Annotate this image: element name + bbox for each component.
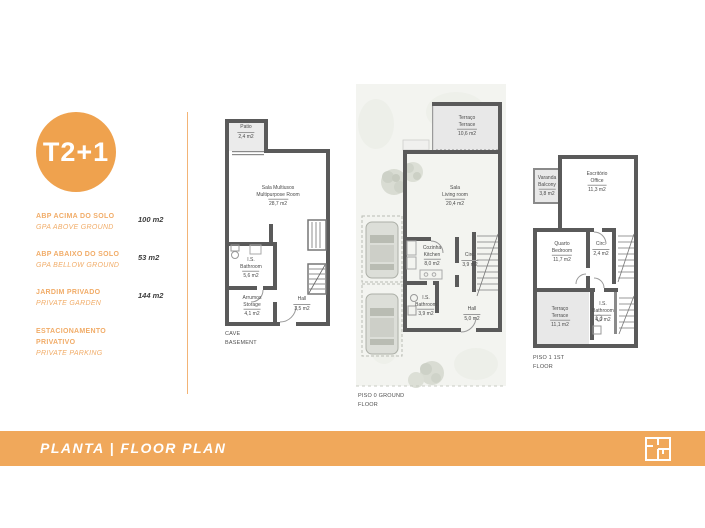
room-label-storage: ArrumosStorage 4,1 m2 xyxy=(243,295,262,318)
room-label-bathroom: I.S.Bathroom 3,9 m2 xyxy=(415,295,437,318)
spec-item-above-ground: ABP ACIMA DO SOLO GPA ABOVE GROUND 100 m… xyxy=(36,211,196,233)
floorplan-ground: TerraçoTerrace 10,6 m2 SalaLiving room 2… xyxy=(356,84,512,414)
room-label-circulation: Circ. 3,9 m2 xyxy=(461,252,478,268)
room-name: SalaLiving room xyxy=(442,185,468,198)
room-label-bedroom: QuartoBedroom 11,7 m2 xyxy=(552,241,572,264)
room-label-office: EscritórioOffice 11,3 m2 xyxy=(587,171,608,194)
room-name: QuartoBedroom xyxy=(552,241,572,254)
room-label-circulation: Circ. 2,4 m2 xyxy=(592,241,609,257)
floor-caption-basement: CAVEBASEMENT xyxy=(225,330,257,347)
floorplan-icon xyxy=(644,436,672,467)
room-name: Patio xyxy=(237,124,254,131)
room-name: Circ. xyxy=(461,252,478,259)
room-area: 3,8 m2 xyxy=(538,189,555,198)
room-area: 11,7 m2 xyxy=(552,255,572,264)
sidebar-divider xyxy=(187,112,188,394)
spec-sublabel: GPA BELLOW GROUND xyxy=(36,260,196,271)
room-area: 28,7 m2 xyxy=(268,199,288,208)
room-label-terrace: TerraçoTerrace 11,1 m2 xyxy=(550,306,570,329)
room-name: TerraçoTerrace xyxy=(550,306,570,319)
unit-type-label: T2+1 xyxy=(43,137,109,168)
footer-bar: PLANTA | FLOOR PLAN xyxy=(0,431,705,466)
spec-sublabel: PRIVATE GARDEN xyxy=(36,298,196,309)
room-name: Hall xyxy=(293,296,310,303)
floorplan-first: VarandaBalcony 3,8 m2 EscritórioOffice 1… xyxy=(528,146,640,372)
room-area: 10,6 m2 xyxy=(457,129,477,138)
room-name: VarandaBalcony xyxy=(538,175,557,188)
spec-label: ABP ACIMA DO SOLO xyxy=(36,211,196,222)
spec-item-private-parking: ESTACIONAMENTOPRIVATIVO PRIVATE PARKING xyxy=(36,326,196,359)
unit-type-badge: T2+1 xyxy=(36,112,116,192)
room-area: 8,0 m2 xyxy=(423,259,440,268)
room-name: ArrumosStorage xyxy=(243,295,262,308)
spec-label: ABP ABAIXO DO SOLO xyxy=(36,249,196,260)
room-name: CozinhaKitchen xyxy=(423,245,441,258)
room-name: I.S.Bathroom xyxy=(592,301,614,314)
room-name: I.S.Bathroom xyxy=(240,257,262,270)
page-root: T2+1 ABP ACIMA DO SOLO GPA ABOVE GROUND … xyxy=(0,0,705,528)
room-area: 11,1 m2 xyxy=(550,320,570,329)
room-area: 2,4 m2 xyxy=(592,249,609,258)
spec-item-private-garden: JARDIM PRIVADO PRIVATE GARDEN 144 m2 xyxy=(36,287,196,309)
floor-plan-title: PLANTA | FLOOR PLAN xyxy=(40,431,226,466)
floor-caption-ground: PISO 0 GROUNDFLOOR xyxy=(358,392,404,409)
room-label-patio: Patio 2,4 m2 xyxy=(237,124,254,140)
floorplan-basement: Patio 2,4 m2 Sala MultiusosMultipurpose … xyxy=(220,116,334,348)
spec-sublabel: GPA ABOVE GROUND xyxy=(36,222,196,233)
room-label-hall: Hall 3,5 m2 xyxy=(293,296,310,312)
room-name: Circ. xyxy=(592,241,609,248)
floorplan-basement-drawing xyxy=(220,116,334,348)
room-name: I.S.Bathroom xyxy=(415,295,437,308)
spec-value: 100 m2 xyxy=(138,215,163,224)
room-label-kitchen: CozinhaKitchen 8,0 m2 xyxy=(423,245,441,268)
spec-label: ESTACIONAMENTOPRIVATIVO xyxy=(36,326,196,348)
room-area: 3,5 m2 xyxy=(293,304,310,313)
room-area: 5,0 m2 xyxy=(463,314,480,323)
floor-caption-first: PISO 1 1STFLOOR xyxy=(533,354,564,371)
room-name: Hall xyxy=(463,306,480,313)
spec-value: 53 m2 xyxy=(138,253,159,262)
spec-label: JARDIM PRIVADO xyxy=(36,287,196,298)
room-label-living-room: SalaLiving room 20,4 m2 xyxy=(442,185,468,208)
room-area: 4,0 m2 xyxy=(594,315,611,324)
room-area: 3,9 m2 xyxy=(461,260,478,269)
room-label-terrace: TerraçoTerrace 10,6 m2 xyxy=(457,115,477,138)
room-label-balcony: VarandaBalcony 3,8 m2 xyxy=(538,175,557,198)
room-area: 20,4 m2 xyxy=(445,199,465,208)
room-name: Sala MultiusosMultipurpose Room xyxy=(256,185,299,198)
room-name: EscritórioOffice xyxy=(587,171,608,184)
room-label-multipurpose: Sala MultiusosMultipurpose Room 28,7 m2 xyxy=(256,185,299,208)
room-label-hall: Hall 5,0 m2 xyxy=(463,306,480,322)
room-label-bathroom: I.S.Bathroom 5,6 m2 xyxy=(240,257,262,280)
spec-value: 144 m2 xyxy=(138,291,163,300)
spec-item-below-ground: ABP ABAIXO DO SOLO GPA BELLOW GROUND 53 … xyxy=(36,249,196,271)
spec-sublabel: PRIVATE PARKING xyxy=(36,348,196,359)
room-area: 5,6 m2 xyxy=(242,271,259,280)
room-area: 11,3 m2 xyxy=(587,185,607,194)
room-area: 4,1 m2 xyxy=(243,309,260,318)
room-area: 3,9 m2 xyxy=(417,309,434,318)
room-label-bathroom: I.S.Bathroom 4,0 m2 xyxy=(592,301,614,324)
room-area: 2,4 m2 xyxy=(237,132,254,141)
room-name: TerraçoTerrace xyxy=(457,115,477,128)
